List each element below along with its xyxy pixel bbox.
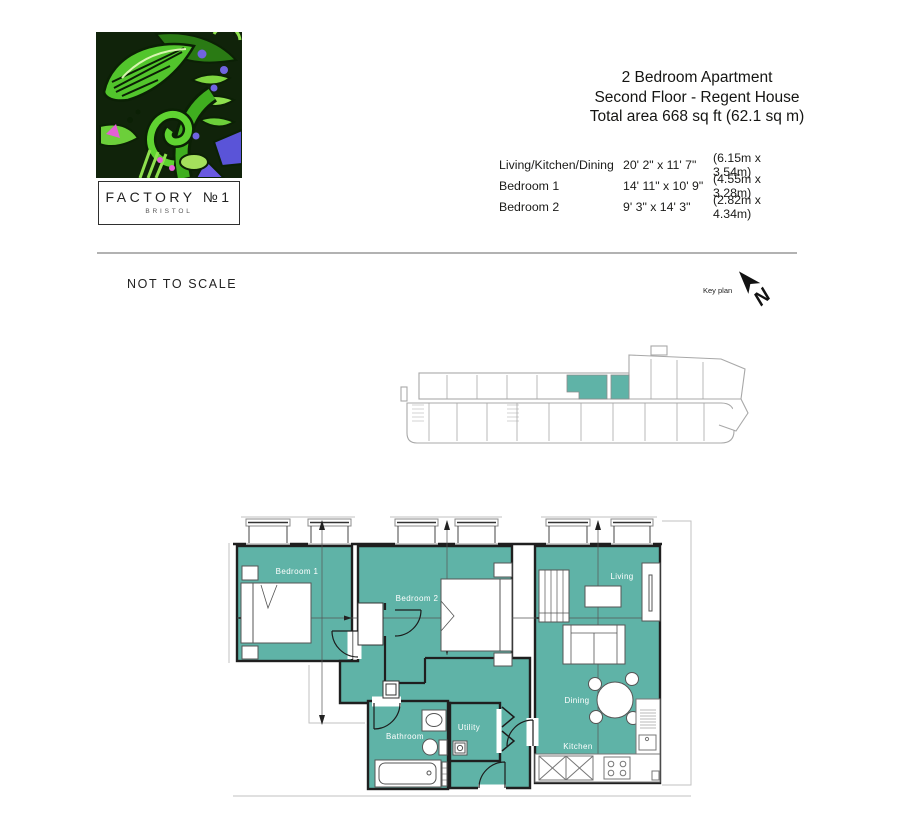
table-row: Bedroom 2 9' 3" x 14' 3" (2.82m x 4.34m): [499, 193, 799, 214]
table-row: Bedroom 1 14' 11" x 10' 9" (4.55m x 3.28…: [499, 172, 799, 193]
page-title: 2 Bedroom Apartment Second Floor - Regen…: [557, 68, 837, 127]
north-arrow-icon: N: [731, 262, 775, 312]
room-dimensions-table: Living/Kitchen/Dining 20' 2" x 11' 7" (6…: [499, 151, 799, 214]
title-line-1: 2 Bedroom Apartment: [557, 68, 837, 88]
label-dining: Dining: [564, 696, 589, 705]
utility-fixtures: [453, 741, 467, 755]
room-name: Bedroom 1: [499, 179, 623, 193]
tv-unit: [642, 563, 660, 621]
coffee-table: [585, 586, 621, 607]
room-size-imperial: 20' 2" x 11' 7": [623, 158, 713, 172]
room-size-imperial: 14' 11" x 10' 9": [623, 179, 713, 193]
section-divider: [97, 252, 797, 254]
dining-table: [597, 682, 633, 718]
room-name: Living/Kitchen/Dining: [499, 158, 623, 172]
hob: [604, 757, 630, 779]
title-line-3: Total area 668 sq ft (62.1 sq m): [557, 107, 837, 127]
room-size-imperial: 9' 3" x 14' 3": [623, 200, 713, 214]
room-size-metric: (2.82m x 4.34m): [713, 193, 799, 221]
brand-box: FACTORY №1 BRISTOL: [98, 181, 240, 225]
not-to-scale-note: NOT TO SCALE: [127, 277, 237, 291]
windows: [246, 519, 653, 543]
label-living: Living: [610, 572, 633, 581]
label-bathroom: Bathroom: [386, 732, 424, 741]
brand-city: BRISTOL: [99, 208, 239, 215]
bed-bedroom2: [441, 579, 512, 651]
label-kitchen: Kitchen: [563, 742, 592, 751]
brand-name: FACTORY №1: [99, 189, 239, 205]
key-plan-drawing: [399, 343, 749, 448]
nightstand: [242, 646, 258, 659]
bookshelf: [539, 570, 569, 622]
room-name: Bedroom 2: [499, 200, 623, 214]
hall-closet: [358, 603, 383, 645]
north-letter: N: [750, 284, 775, 310]
title-line-2: Second Floor - Regent House: [557, 88, 837, 108]
bed-bedroom1: [241, 583, 311, 643]
logo-image: [96, 32, 242, 178]
nightstand: [494, 653, 512, 666]
brochure-page: FACTORY №1 BRISTOL 2 Bedroom Apartment S…: [0, 0, 901, 829]
label-bedroom1: Bedroom 1: [276, 567, 319, 576]
toilet: [423, 739, 438, 755]
key-plan-label: Key plan: [703, 286, 732, 295]
table-row: Living/Kitchen/Dining 20' 2" x 11' 7" (6…: [499, 151, 799, 172]
nightstand: [494, 563, 512, 577]
toilet-cistern: [439, 740, 447, 755]
label-utility: Utility: [458, 723, 480, 732]
key-plan-building: [401, 346, 748, 443]
label-bedroom2: Bedroom 2: [396, 594, 439, 603]
nightstand: [242, 566, 258, 580]
floor-plan-drawing: Bedroom 1 Bedroom 2 Living Dining Kitche…: [225, 513, 705, 820]
